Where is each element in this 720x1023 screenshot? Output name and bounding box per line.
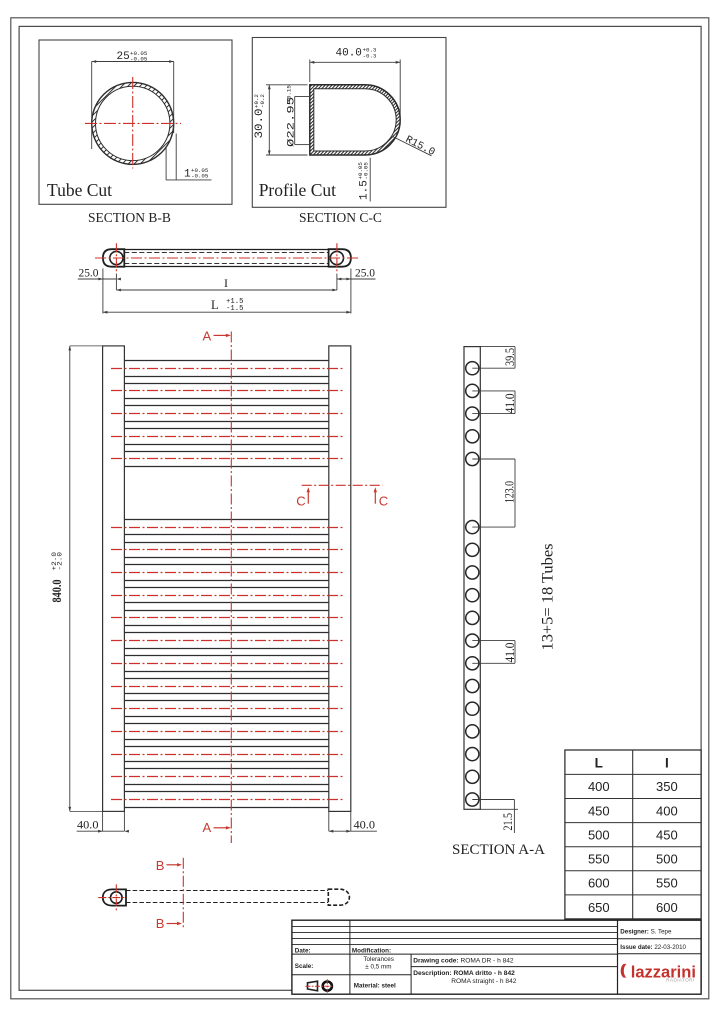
svg-text:-0.05: -0.05	[191, 173, 209, 180]
svg-text:39.5: 39.5	[503, 348, 517, 366]
svg-text:ROMA straight - h 842: ROMA straight - h 842	[451, 978, 517, 985]
svg-text:40.0: 40.0	[354, 820, 376, 832]
svg-text:Drawing code: ROMA DR - h 842: Drawing code: ROMA DR - h 842	[413, 958, 514, 965]
svg-text:Date:: Date:	[295, 947, 311, 954]
svg-text:550: 550	[588, 852, 610, 867]
svg-text:450: 450	[656, 827, 678, 842]
svg-text:SECTION C-C: SECTION C-C	[299, 210, 382, 225]
svg-text:Modification:: Modification:	[352, 947, 391, 954]
svg-text:B: B	[156, 916, 165, 931]
svg-text:C: C	[379, 494, 388, 509]
svg-text:41.0: 41.0	[503, 643, 517, 663]
svg-text:400: 400	[656, 803, 678, 818]
svg-text:1: 1	[184, 169, 191, 181]
svg-text:25: 25	[117, 51, 130, 63]
svg-text:Description: ROMA dritto - h 8: Description: ROMA dritto - h 842	[413, 970, 515, 977]
svg-text:25.0: 25.0	[355, 268, 375, 280]
svg-text:+0.15: +0.15	[286, 85, 293, 103]
svg-text:840.0: 840.0	[50, 580, 64, 603]
svg-text:-0.3: -0.3	[363, 53, 377, 60]
svg-text:I: I	[665, 756, 669, 771]
svg-text:L: L	[211, 298, 219, 312]
svg-text:L: L	[595, 756, 603, 771]
svg-text:SECTION A-A: SECTION A-A	[452, 842, 545, 858]
svg-text:-2.0: -2.0	[57, 552, 64, 571]
svg-text:40.0: 40.0	[336, 48, 362, 60]
svg-text:Scale:: Scale:	[295, 963, 314, 970]
svg-text:Ø22.95: Ø22.95	[286, 97, 298, 147]
svg-text:40.0: 40.0	[77, 820, 99, 832]
svg-text:Profile Cut: Profile Cut	[259, 180, 336, 200]
svg-text:± 0,5 mm: ± 0,5 mm	[365, 963, 391, 970]
svg-text:-0.05: -0.05	[362, 162, 369, 180]
svg-text:21.5: 21.5	[501, 813, 515, 831]
svg-text:Issue date: 22-03-2010: Issue date: 22-03-2010	[620, 944, 686, 951]
svg-text:41.0: 41.0	[503, 393, 517, 413]
svg-text:550: 550	[656, 876, 678, 891]
svg-text:500: 500	[656, 852, 678, 867]
svg-text:Designer: S. Tepe: Designer: S. Tepe	[620, 929, 672, 936]
svg-text:400: 400	[588, 779, 610, 794]
svg-text:B: B	[156, 858, 165, 873]
svg-text:A: A	[203, 328, 212, 343]
svg-text:1.5: 1.5	[359, 180, 371, 200]
svg-text:600: 600	[656, 900, 678, 915]
svg-text:123.0: 123.0	[503, 481, 517, 503]
svg-text:25.0: 25.0	[79, 268, 99, 280]
svg-text:-1.5: -1.5	[226, 305, 244, 313]
svg-text:-0.2: -0.2	[259, 94, 266, 108]
svg-text:350: 350	[656, 779, 678, 794]
svg-text:-0.05: -0.05	[130, 56, 148, 63]
svg-text:Tube Cut: Tube Cut	[47, 180, 112, 200]
svg-text:650: 650	[588, 900, 610, 915]
svg-text:450: 450	[588, 803, 610, 818]
svg-text:RADIATORI: RADIATORI	[666, 977, 694, 982]
svg-text:SECTION B-B: SECTION B-B	[88, 210, 171, 225]
svg-text:30.0: 30.0	[254, 109, 266, 139]
svg-text:Tolerances: Tolerances	[363, 956, 393, 963]
svg-text:I: I	[224, 276, 228, 290]
svg-text:600: 600	[588, 876, 610, 891]
svg-text:C: C	[296, 494, 305, 509]
svg-text:13+5= 18 Tubes: 13+5= 18 Tubes	[540, 544, 557, 651]
svg-text:500: 500	[588, 827, 610, 842]
svg-text:Material: steel: Material: steel	[354, 982, 396, 989]
svg-text:A: A	[203, 820, 212, 835]
